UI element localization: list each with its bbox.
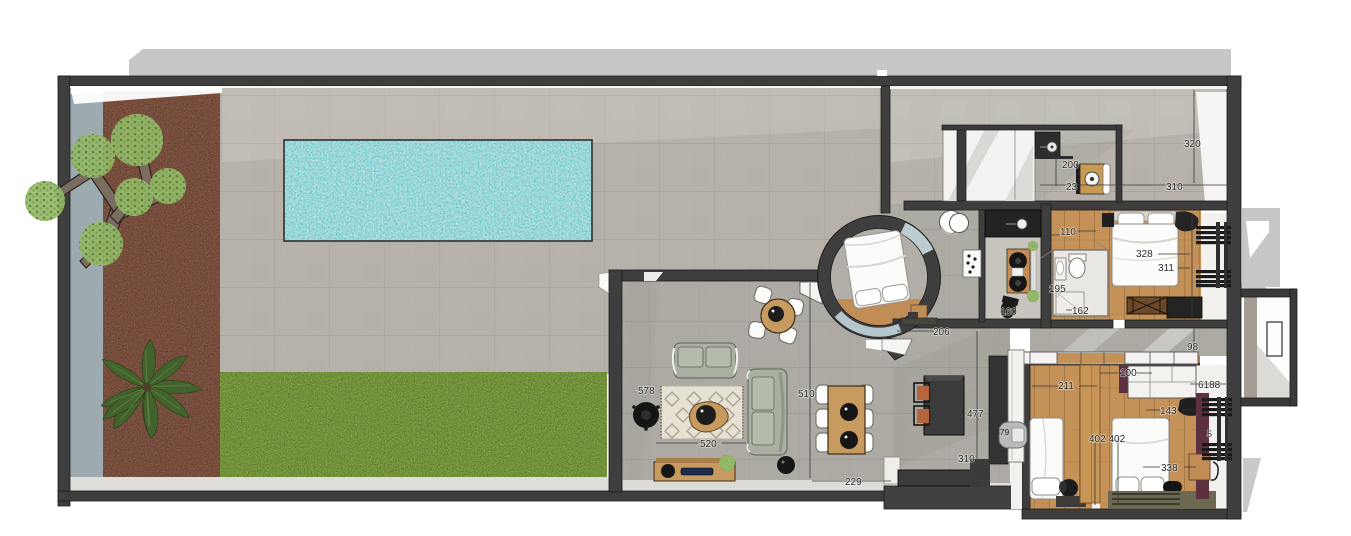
svg-text:379: 379 [995, 427, 1009, 437]
svg-text:402 402: 402 402 [1089, 434, 1126, 445]
svg-text:211: 211 [1058, 381, 1074, 392]
svg-text:5: 5 [1207, 429, 1212, 439]
svg-text:510: 510 [798, 389, 815, 400]
svg-text:143: 143 [1160, 406, 1177, 417]
svg-text:23: 23 [1066, 182, 1078, 193]
svg-text:310: 310 [958, 454, 975, 465]
svg-text:328: 328 [1136, 249, 1153, 260]
svg-text:520: 520 [700, 439, 717, 450]
svg-text:200: 200 [1062, 160, 1079, 171]
svg-text:160: 160 [1000, 307, 1017, 318]
svg-text:477: 477 [967, 409, 984, 420]
svg-text:100: 100 [1120, 368, 1137, 379]
svg-text:229: 229 [845, 477, 862, 488]
svg-text:311: 311 [1158, 263, 1174, 274]
svg-text:6188: 6188 [1198, 380, 1221, 391]
svg-text:578: 578 [638, 386, 655, 397]
svg-text:338: 338 [1161, 463, 1178, 474]
svg-text:110: 110 [1060, 227, 1076, 238]
svg-text:206: 206 [933, 327, 950, 338]
svg-text:320: 320 [1184, 139, 1201, 150]
svg-text:310: 310 [1166, 182, 1183, 193]
svg-text:195: 195 [1049, 284, 1066, 295]
svg-text:98: 98 [1187, 342, 1199, 353]
svg-text:162: 162 [1072, 306, 1089, 317]
